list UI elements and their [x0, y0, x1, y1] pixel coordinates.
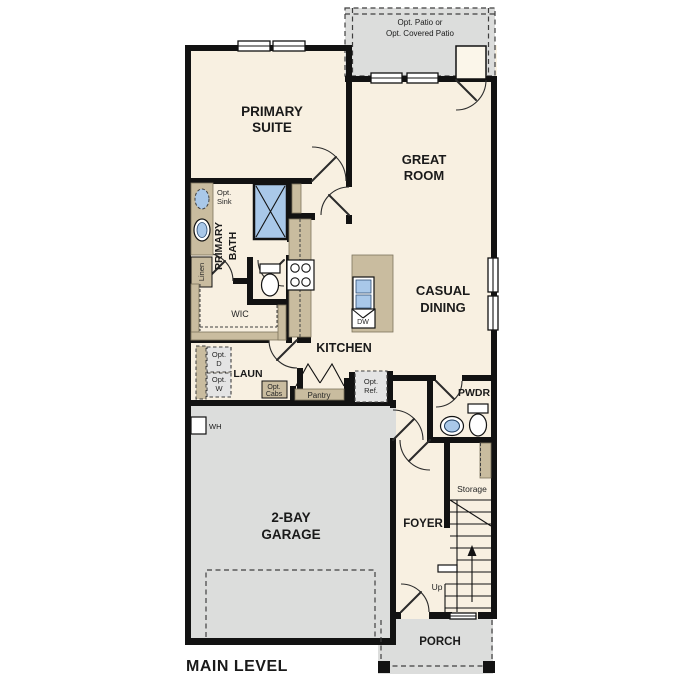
label-primary-suite-1: PRIMARY [241, 104, 303, 119]
label-opt-ref-1: Opt. [364, 377, 378, 386]
label-linen: Linen [197, 263, 206, 281]
toilet-tank [260, 264, 280, 273]
label-great-room-1: GREAT [402, 152, 447, 167]
plan-title: MAIN LEVEL [186, 658, 288, 675]
label-dw: DW [357, 319, 369, 326]
label-opt-d-1: Opt. [212, 350, 226, 359]
label-garage-2: GARAGE [261, 527, 320, 542]
garage-area [191, 406, 396, 645]
porch-post [483, 661, 495, 673]
label-wh: WH [209, 422, 222, 431]
label-casual-dining-1: CASUAL [416, 283, 470, 298]
label-laundry: LAUN [233, 368, 262, 380]
label-foyer: FOYER [403, 518, 443, 530]
storage-elements [480, 443, 491, 478]
label-primary-suite-2: SUITE [252, 120, 292, 135]
label-opt-patio-2: Opt. Covered Patio [386, 29, 455, 38]
label-garage-1: 2-BAY [271, 510, 310, 525]
porch-post [378, 661, 390, 673]
label-opt-w-2: W [215, 384, 223, 393]
stair-newel [438, 565, 457, 572]
label-opt-w-1: Opt. [212, 375, 226, 384]
label-opt-ref-2: Ref. [364, 386, 378, 395]
label-primary-bath-1: PRIMARY [213, 222, 225, 270]
hall-cabinet [292, 184, 301, 213]
label-opt-d-2: D [216, 359, 222, 368]
label-opt-sink-2: Sink [217, 197, 232, 206]
label-pwdr: PWDR [458, 387, 490, 399]
water-heater [191, 417, 206, 434]
label-kitchen: KITCHEN [316, 341, 372, 355]
label-opt-patio-1: Opt. Patio or [398, 18, 443, 27]
optional-cabinet-tall [196, 346, 206, 399]
patio-door-leaf [456, 46, 486, 79]
label-up: Up [432, 582, 443, 592]
label-opt-sink-1: Opt. [217, 188, 231, 197]
range [287, 260, 314, 290]
toilet-bowl [262, 274, 279, 296]
label-great-room-2: ROOM [404, 168, 444, 183]
label-opt-cabs-2: Cabs [266, 391, 283, 398]
label-wic: WIC [231, 309, 249, 319]
powder-toilet-tank [468, 404, 488, 413]
label-pantry: Pantry [307, 391, 330, 400]
floor-plan: Opt. Patio or Opt. Covered Patio PRIMARY… [0, 0, 687, 687]
label-casual-dining-2: DINING [420, 300, 466, 315]
label-storage: Storage [457, 484, 487, 494]
label-porch: PORCH [419, 636, 461, 648]
label-primary-bath-2: BATH [227, 232, 239, 260]
powder-toilet-bowl [470, 414, 487, 436]
optional-sink [195, 189, 209, 209]
label-opt-cabs-1: Opt. [267, 384, 280, 391]
